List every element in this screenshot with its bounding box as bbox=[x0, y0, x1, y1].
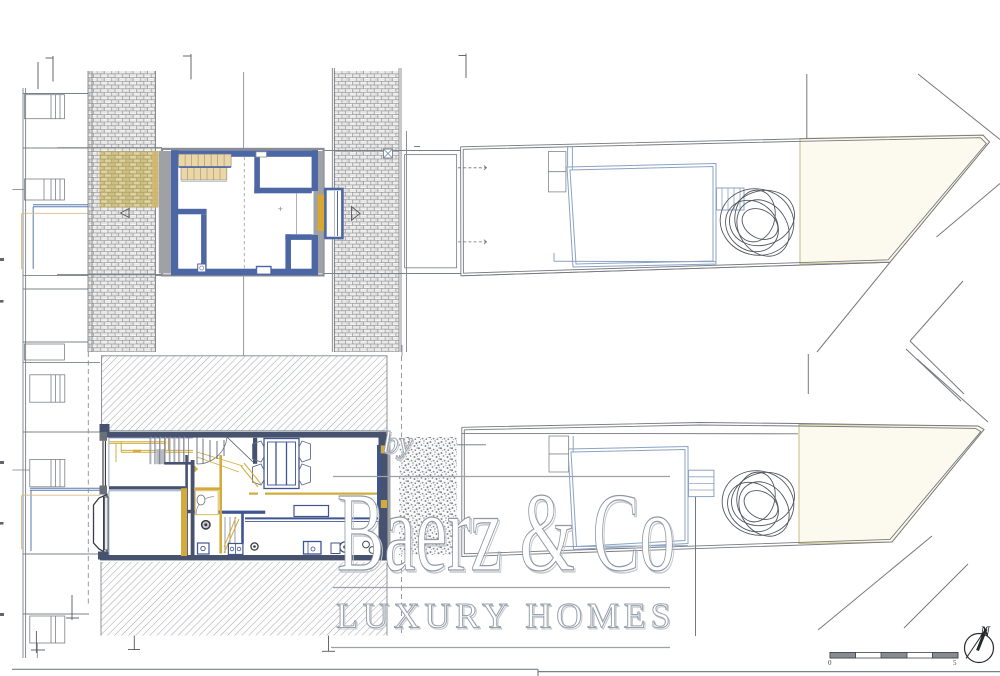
svg-text:N: N bbox=[979, 624, 991, 640]
svg-text:by: by bbox=[383, 425, 413, 460]
svg-text:5: 5 bbox=[953, 659, 957, 667]
svg-text:LUXURY HOMES: LUXURY HOMES bbox=[336, 596, 675, 636]
svg-text:Baerz & Co: Baerz & Co bbox=[337, 472, 675, 595]
svg-text:0: 0 bbox=[828, 659, 832, 667]
